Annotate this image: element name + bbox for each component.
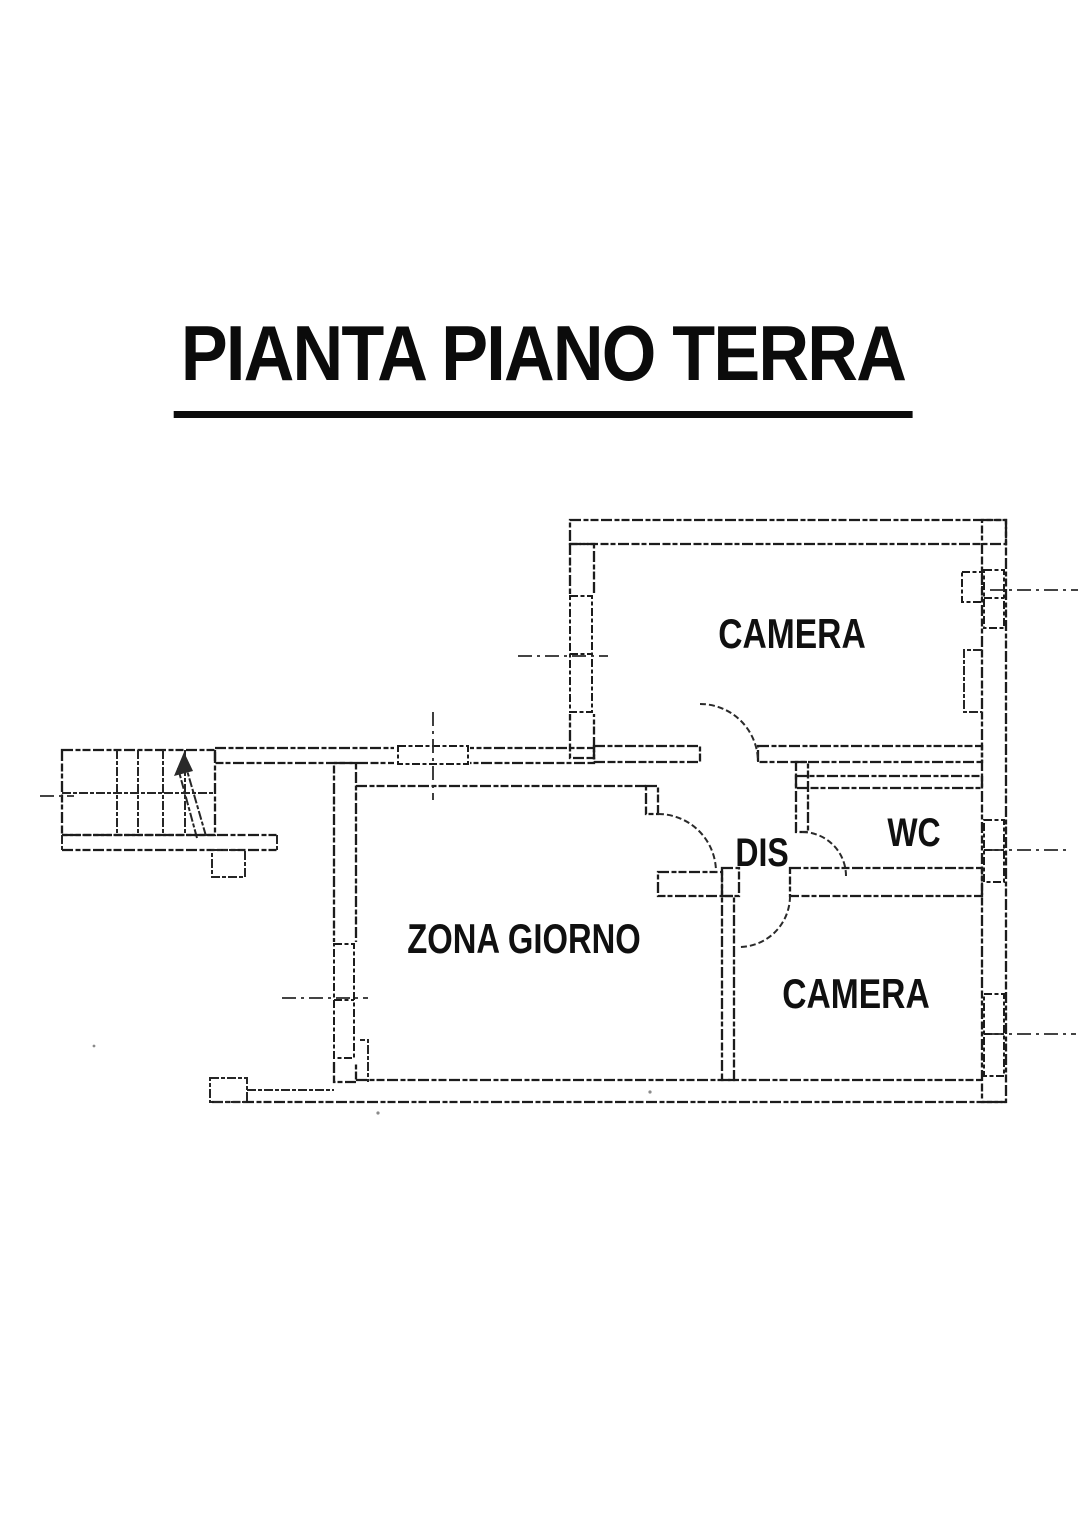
windows: [282, 570, 1078, 1076]
staircase-direction-arrow-head: [174, 752, 193, 776]
room-label-camera-nord: CAMERA: [718, 612, 865, 658]
wall-bottom-left-pillar: [210, 1078, 247, 1102]
room-label-camera-sud: CAMERA: [782, 972, 929, 1018]
door-arc-wc: [802, 832, 846, 876]
scan-speck: [93, 1045, 96, 1048]
opening-window-zona: [328, 942, 360, 1062]
staircase: [40, 750, 277, 877]
room-label-zona-giorno: ZONA GIORNO: [407, 915, 641, 962]
window-openings: [328, 594, 600, 1062]
wall-zona-camera-divider: [722, 896, 734, 1080]
door-arc-camera-sud: [739, 896, 790, 947]
opening-window-passage: [394, 744, 470, 766]
wall-north-camera-top: [570, 520, 1006, 544]
doors: [658, 704, 846, 947]
wall-camera-south-left: [594, 746, 700, 762]
wall-wc-left: [796, 762, 808, 832]
wall-wc-south: [790, 868, 982, 896]
wall-east-exterior: [982, 520, 1006, 1102]
wall-camera-south-right: [758, 746, 982, 762]
room-label-wc: WC: [887, 810, 940, 855]
wall-east-niche: [964, 650, 982, 712]
room-labels: CAMERA WC DIS ZONA GIORNO CAMERA: [407, 612, 940, 1018]
door-arc-zona-to-dis: [658, 814, 716, 872]
wall-wc-top: [796, 776, 982, 788]
door-arc-entry-to-dis: [700, 704, 758, 762]
scanned-floor-plan-page: PIANTA PIANO TERRA: [0, 0, 1085, 1535]
floor-plan-drawing: CAMERA WC DIS ZONA GIORNO CAMERA: [0, 0, 1085, 1535]
staircase-direction-arrow-shaft-2: [178, 768, 197, 838]
wall-dis-southwest: [658, 872, 722, 896]
scan-speck: [648, 1090, 651, 1093]
room-label-dis: DIS: [735, 830, 788, 875]
scan-speck: [376, 1111, 379, 1114]
staircase-landing-pillar: [212, 850, 245, 877]
wall-zona-top-stub: [646, 786, 658, 814]
window-camera-east-niche: [962, 572, 982, 602]
